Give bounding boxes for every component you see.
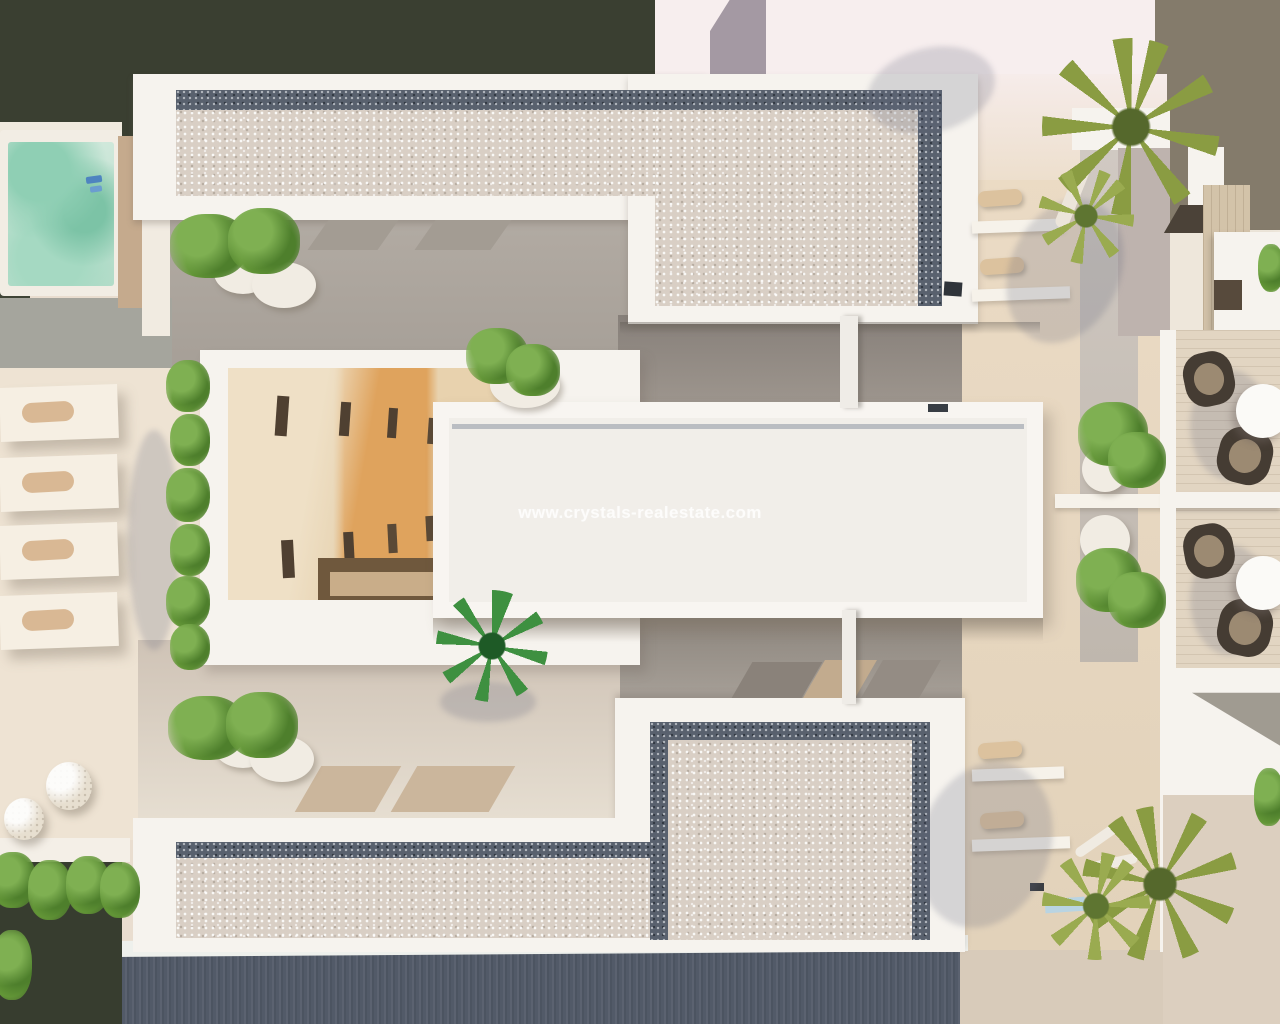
- hedge-shrub: [170, 524, 210, 576]
- hedge-shrub: [170, 414, 210, 466]
- top-right-slab-opening: [1214, 280, 1242, 310]
- lounger-pillow: [22, 471, 75, 494]
- pebble-sphere: [4, 798, 44, 840]
- balcony-corner-plant: [1258, 244, 1280, 292]
- road: [118, 950, 968, 1024]
- hedge-shrub: [166, 468, 210, 522]
- connector-pillar-top: [840, 316, 858, 408]
- lounger-pillow: [22, 609, 75, 632]
- roof-slab-edge-line: [452, 424, 1024, 429]
- watermark-text: www.crystals-realestate.com: [505, 503, 775, 523]
- render-canvas: www.crystals-realestate.com: [0, 0, 1280, 1024]
- bush: [228, 208, 300, 274]
- top-roof-gravel-dark-edge: [176, 90, 942, 110]
- roof-vent: [944, 281, 963, 296]
- roof-slab-vent: [928, 404, 948, 412]
- balcony-divider: [1163, 492, 1280, 508]
- planter-shelf: [1055, 494, 1165, 508]
- lounger-pillow: [22, 401, 75, 424]
- building-drop-shadow: [620, 322, 1040, 334]
- bottom-roof-gravel-right: [650, 722, 930, 940]
- vine-leaves: [100, 862, 140, 918]
- connector-pillar-bottom: [842, 610, 856, 704]
- atrium-plant: [506, 344, 560, 396]
- bush: [226, 692, 298, 758]
- atrium-window: [387, 524, 398, 553]
- bottom-roof-gravel-dark-edge: [176, 842, 654, 858]
- jacuzzi-water: [8, 142, 114, 286]
- atrium-ground-mat: [330, 572, 436, 596]
- planter-plant: [1108, 432, 1166, 488]
- vine-leaves: [0, 930, 32, 1000]
- lounger-pillow: [22, 539, 75, 562]
- atrium-window: [281, 540, 295, 579]
- hedge-shrub: [170, 624, 210, 670]
- hedge-shrub: [166, 576, 210, 628]
- bottom-right-plant: [1254, 768, 1280, 826]
- walkway-lounger-towel: [977, 188, 1022, 207]
- pebble-sphere: [46, 762, 92, 810]
- planter-plant: [1108, 572, 1166, 628]
- hedge-shrub: [166, 360, 210, 412]
- walkway-lounger-towel: [977, 740, 1022, 759]
- bottom-roof-gravel-dark-edge-top: [650, 722, 930, 740]
- bottom-roof-gravel-dark-edge-left: [650, 722, 668, 940]
